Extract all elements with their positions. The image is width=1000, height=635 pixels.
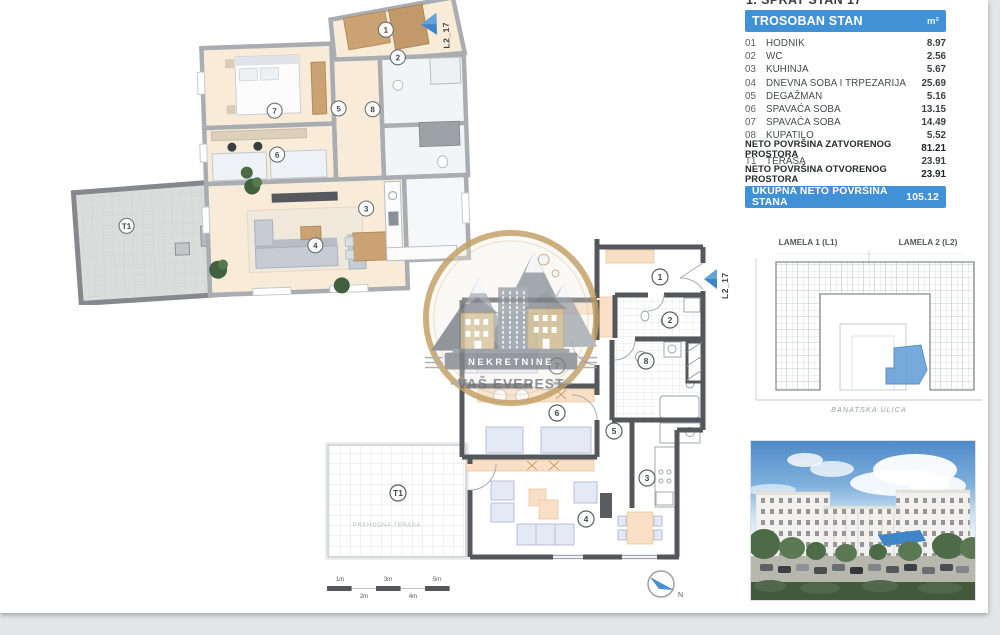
floorplan-sheet: 1 2 5 8 7 6 3 4 T1 L2_17 bbox=[0, 0, 988, 613]
side-table bbox=[574, 482, 597, 503]
table-total: UKUPNA NETO POVRŠINA STANA 105.12 bbox=[745, 186, 946, 208]
row-value: 2.56 bbox=[927, 51, 946, 62]
logo-dot-icon bbox=[552, 270, 559, 277]
logo-banner: NEKRETNINE bbox=[425, 353, 597, 370]
row-num: 06 bbox=[745, 104, 766, 115]
shower-3d bbox=[419, 121, 460, 146]
terrace-name: PREHODNA TERASA bbox=[353, 523, 421, 529]
table-header: TROSOBAN STAN m² bbox=[745, 10, 946, 32]
building-render-photo bbox=[750, 440, 976, 601]
scale-3m: 3m bbox=[384, 577, 392, 583]
total-value: 105.12 bbox=[906, 192, 939, 203]
scale-1m: 1m bbox=[336, 577, 344, 583]
row-num: 02 bbox=[745, 51, 766, 62]
sofa-2d bbox=[517, 524, 574, 545]
row-value: 23.91 bbox=[921, 156, 946, 167]
row-name: SPAVAĆA SOBA bbox=[766, 117, 921, 128]
row-name: DEGAŽMAN bbox=[766, 91, 927, 102]
row-num: 04 bbox=[745, 78, 766, 89]
room2d-3: 3 bbox=[645, 473, 650, 483]
table-row: 01HODNIK8.97 bbox=[745, 37, 946, 50]
row-name: DNEVNA SOBA I TRPEZARIJA bbox=[766, 78, 921, 89]
area-table: 1. SPRAT STAN 17 TROSOBAN STAN m² 01HODN… bbox=[745, 0, 946, 208]
row-num: 07 bbox=[745, 117, 766, 128]
terrace-badge: T1 bbox=[122, 222, 132, 231]
row-value: 14.49 bbox=[921, 117, 946, 128]
entry-arrow-2d: L2_17 bbox=[704, 269, 730, 299]
lamela1-label: LAMELA 1 (L1) bbox=[779, 237, 838, 247]
summary-row-open: NETO POVRŠINA OTVORENOG PROSTORA23.91 bbox=[745, 168, 946, 180]
street-label: BANATSKA ULICA bbox=[831, 405, 907, 414]
agency-watermark-logo: NEKRETNINE VAŠ EVEREST bbox=[417, 226, 605, 414]
room2d-4: 4 bbox=[584, 514, 589, 524]
table-row: 07SPAVAĆA SOBA14.49 bbox=[745, 116, 946, 129]
lamela2-label: LAMELA 2 (L2) bbox=[899, 237, 958, 247]
armchair-a bbox=[491, 481, 514, 500]
room2d-5: 5 bbox=[612, 426, 617, 436]
terrace2d-badge: T1 bbox=[393, 488, 403, 498]
table-row: 05DEGAŽMAN5.16 bbox=[745, 90, 946, 103]
compass: N bbox=[648, 571, 683, 599]
room2d-2: 2 bbox=[668, 315, 673, 325]
corridor-3d bbox=[332, 58, 384, 180]
wardrobe-3d bbox=[311, 62, 327, 114]
scale-5m: 5m bbox=[433, 577, 441, 583]
row-num: 05 bbox=[745, 91, 766, 102]
row-num: 01 bbox=[745, 38, 766, 49]
row-value: 5.67 bbox=[927, 64, 946, 75]
row-value: 8.97 bbox=[927, 38, 946, 49]
row-num: 03 bbox=[745, 64, 766, 75]
wc-toilet bbox=[641, 311, 649, 321]
armchair-b bbox=[491, 503, 514, 522]
room2d-1: 1 bbox=[658, 272, 663, 282]
row-name: KUHINJA bbox=[766, 64, 927, 75]
row-name: WC bbox=[766, 51, 927, 62]
site-plan: LAMELA 1 (L1) LAMELA 2 (L2) BANATSKA ULI… bbox=[748, 232, 988, 428]
shaft-2d bbox=[687, 342, 702, 382]
total-label: UKUPNA NETO POVRŠINA STANA bbox=[752, 186, 906, 208]
bed-room6-b bbox=[541, 427, 591, 453]
dining-table-2d bbox=[627, 512, 653, 544]
table-header-unit: m² bbox=[927, 16, 939, 27]
table-row: 03KUHINJA5.67 bbox=[745, 63, 946, 76]
room2d-8: 8 bbox=[644, 356, 649, 366]
unit-label-2d: L2_17 bbox=[720, 272, 730, 299]
logo-line1: NEKRETNINE bbox=[468, 356, 554, 367]
compass-n: N bbox=[678, 592, 683, 599]
scale-bar: 1m 3m 5m 2m 4m bbox=[327, 577, 450, 600]
row-value: 81.21 bbox=[921, 143, 946, 154]
scale-4m: 4m bbox=[409, 594, 417, 600]
row-name: SPAVAĆA SOBA bbox=[766, 104, 921, 115]
unit-title: 1. SPRAT STAN 17 bbox=[746, 0, 862, 7]
row-value: 5.52 bbox=[927, 130, 946, 141]
screenshot-root: { "table": { "title": "1. SPRAT STAN 17"… bbox=[0, 0, 1000, 635]
table-row: 04DNEVNA SOBA I TRPEZARIJA25.69 bbox=[745, 77, 946, 90]
table-row: 02WC2.56 bbox=[745, 50, 946, 63]
wc-shower bbox=[684, 298, 700, 312]
table-rows: 01HODNIK8.97 02WC2.56 03KUHINJA5.67 04DN… bbox=[745, 37, 946, 180]
row-value: 5.16 bbox=[927, 91, 946, 102]
summary-row-closed: NETO POVRŠINA ZATVORENOG PROSTORA81.21 bbox=[745, 143, 946, 155]
bed-room6-a bbox=[486, 427, 523, 453]
unit-label-3d: L2_17 bbox=[441, 22, 452, 49]
row-value: 25.69 bbox=[921, 78, 946, 89]
bathtub bbox=[660, 396, 699, 418]
row-value: 23.91 bbox=[921, 169, 946, 180]
table-header-label: TROSOBAN STAN bbox=[752, 14, 863, 28]
row-value: 13.15 bbox=[921, 104, 946, 115]
logo-sun-icon bbox=[538, 254, 549, 265]
scale-2m: 2m bbox=[360, 594, 368, 600]
logo-line2: VAŠ EVEREST bbox=[458, 374, 565, 391]
tv-2d bbox=[600, 493, 612, 518]
table-row: 06SPAVAĆA SOBA13.15 bbox=[745, 103, 946, 116]
row-name: NETO POVRŠINA OTVORENOG PROSTORA bbox=[745, 164, 921, 184]
row-name: HODNIK bbox=[766, 38, 927, 49]
